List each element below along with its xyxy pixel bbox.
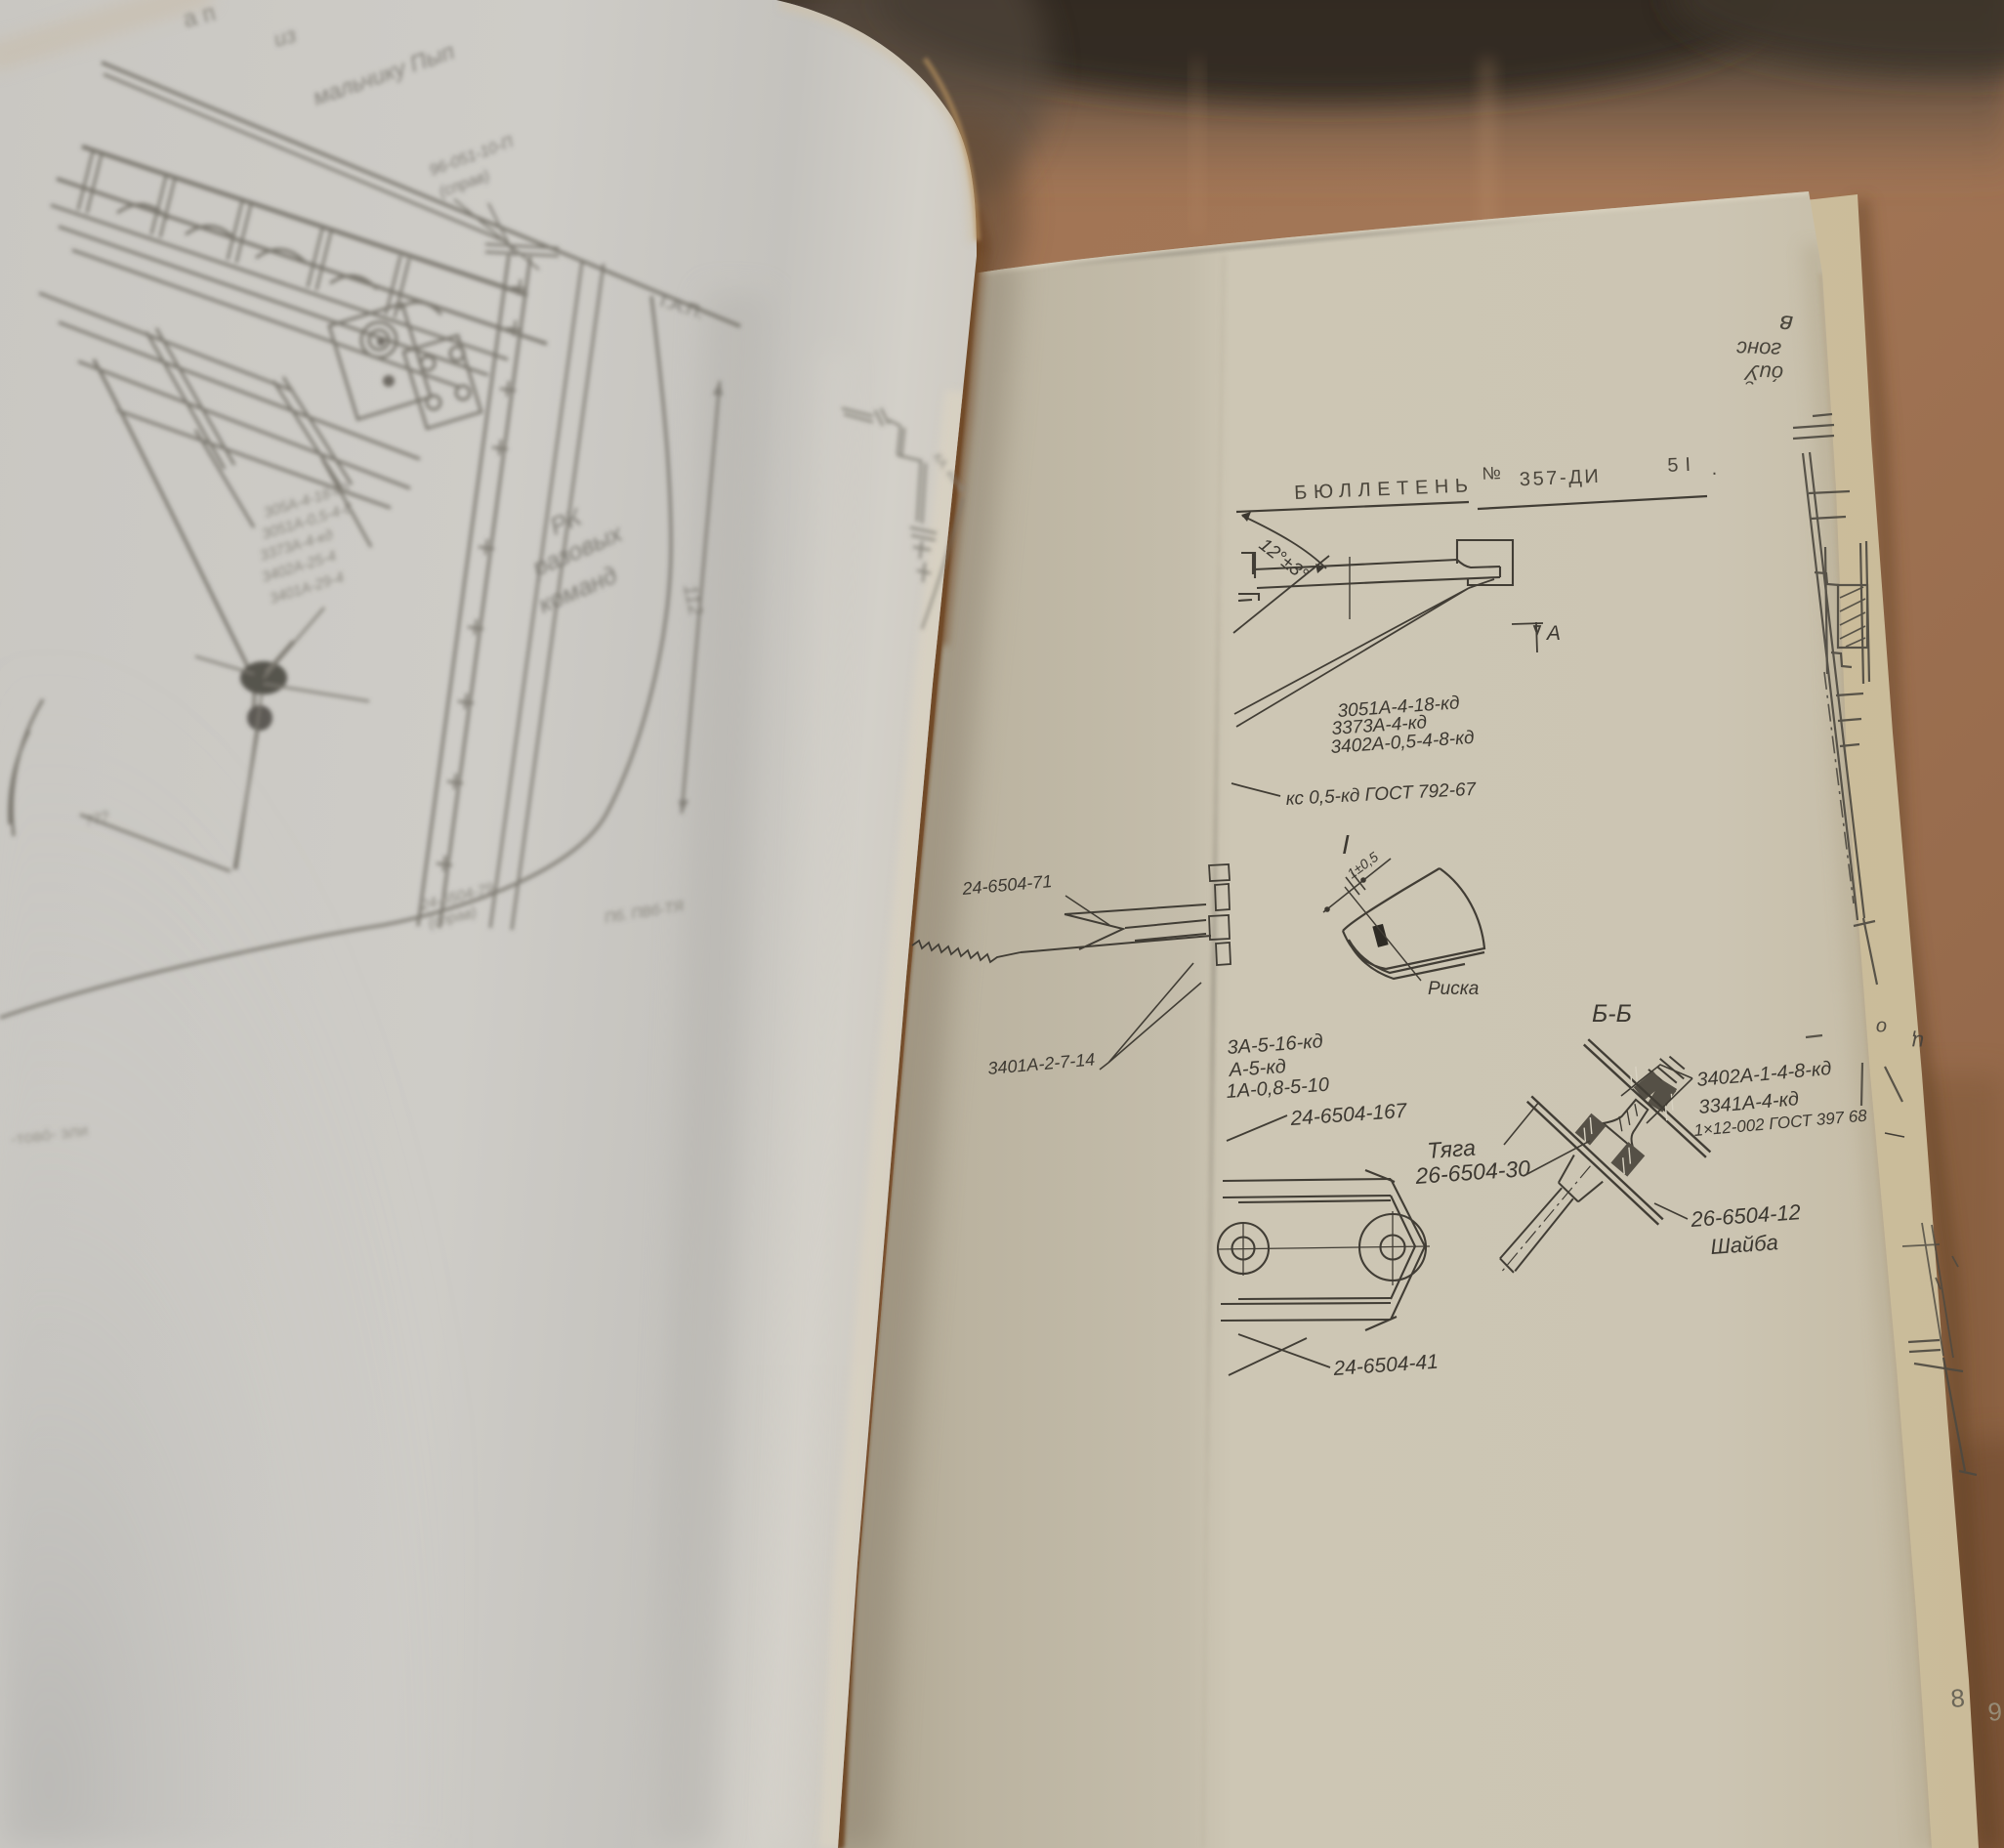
svg-text:№: № (1482, 463, 1501, 483)
svg-text:.: . (1711, 458, 1717, 480)
svg-text:ц: ц (1911, 1030, 1924, 1055)
svg-text:в: в (1778, 310, 1794, 340)
svg-text:о: о (1876, 1017, 1888, 1038)
svg-text:5I: 5I (1667, 454, 1698, 477)
svg-text:гонс: гонс (1736, 336, 1782, 362)
svg-text:Шайба: Шайба (1710, 1230, 1779, 1259)
svg-text:Б-Б: Б-Б (1592, 1000, 1632, 1028)
svg-text:357-ДИ: 357-ДИ (1519, 466, 1601, 490)
svg-text:8: 8 (1949, 1683, 1966, 1713)
svg-text:А: А (1545, 622, 1561, 645)
svg-text:9: 9 (1986, 1697, 2003, 1727)
svg-text:о́иЎ: о́иЎ (1743, 360, 1783, 387)
svg-text:I: I (1342, 829, 1350, 860)
svg-text:Риска: Риска (1428, 979, 1479, 999)
